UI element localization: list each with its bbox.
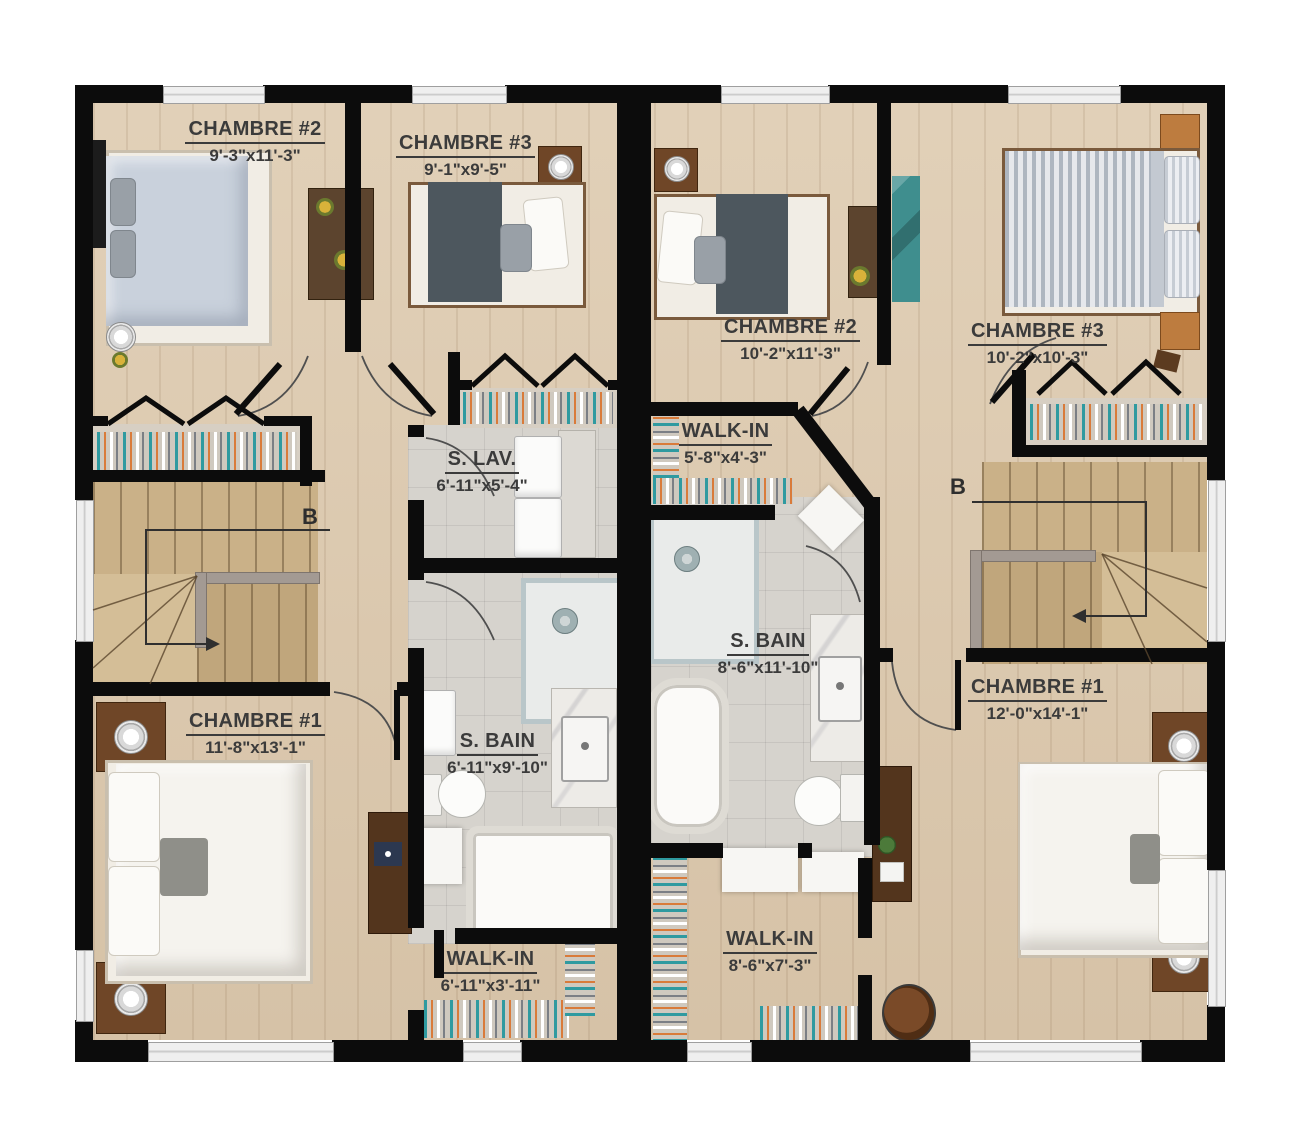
stair-flight <box>93 482 318 574</box>
window <box>163 86 265 104</box>
wall <box>1207 85 1225 480</box>
window <box>687 1042 752 1062</box>
wall <box>448 380 472 390</box>
bench <box>892 176 920 302</box>
wall <box>828 85 1008 103</box>
desk <box>368 812 412 934</box>
shower-head <box>552 608 578 634</box>
room-name: S. BAIN <box>457 730 538 756</box>
stairs-right <box>982 462 1207 664</box>
wall <box>1207 1005 1225 1062</box>
nightstand <box>1160 114 1200 150</box>
room-label-sbain-right: S. BAIN 8'-6"x11'-10" <box>683 630 853 678</box>
clothes-rack <box>653 856 687 1042</box>
wall <box>966 648 1225 662</box>
wall <box>408 558 617 573</box>
wall <box>651 843 723 858</box>
room-name: CHAMBRE #3 <box>396 132 535 158</box>
room-dims: 6'-11"x5'-4" <box>436 474 527 496</box>
stair-flight <box>197 574 318 684</box>
wall <box>864 497 880 845</box>
pillow <box>1158 858 1210 944</box>
room-dims: 9'-1"x9'-5" <box>424 158 507 180</box>
stair-winder <box>93 574 197 684</box>
table-lamp <box>114 982 148 1016</box>
party-wall <box>617 85 651 1062</box>
wall <box>798 843 812 858</box>
stair-label-right: B <box>950 474 966 500</box>
room-dims: 5'-8"x4'-3" <box>684 446 767 468</box>
wall <box>1012 445 1207 457</box>
room-label-walkin-bottom-right: WALK-IN 8'-6"x7'-3" <box>690 928 850 976</box>
table-lamp <box>1168 730 1200 762</box>
room-name: CHAMBRE #1 <box>186 710 325 736</box>
window <box>148 1042 334 1062</box>
floor-plan: CHAMBRE #2 9'-3"x11'-3" CHAMBRE #3 9'-1"… <box>0 0 1300 1144</box>
wall <box>75 640 93 950</box>
bathtub <box>466 826 620 940</box>
table-lamp <box>664 156 690 182</box>
dryer <box>514 498 562 558</box>
room-label-slav-left: S. LAV. 6'-11"x5'-4" <box>402 448 562 496</box>
window <box>1208 870 1226 1007</box>
pillow <box>1158 770 1210 856</box>
pillow <box>110 230 136 278</box>
room-name: CHAMBRE #2 <box>721 316 860 342</box>
nightstand <box>1160 312 1200 350</box>
wall <box>651 402 798 416</box>
room-name: CHAMBRE #1 <box>968 676 1107 702</box>
room-dims: 8'-6"x11'-10" <box>718 656 819 678</box>
bed-throw <box>160 838 208 896</box>
room-name: WALK-IN <box>723 928 817 954</box>
stair-railing <box>970 550 1096 562</box>
wall <box>505 85 721 103</box>
toilet <box>794 776 844 826</box>
faucet <box>581 742 589 750</box>
bath-mat <box>802 852 864 892</box>
bed-blanket <box>428 182 502 302</box>
wall <box>75 85 93 500</box>
flowers <box>112 352 128 368</box>
wall <box>880 648 893 662</box>
bathtub <box>647 678 729 834</box>
pillow <box>500 224 532 272</box>
room-dims: 8'-6"x7'-3" <box>729 954 812 976</box>
bed-sheet <box>1151 151 1164 307</box>
room-name: S. LAV. <box>445 448 520 474</box>
stair-railing <box>970 550 982 659</box>
plant <box>878 836 896 854</box>
bed-blanket <box>716 194 788 314</box>
room-label-chambre2-left: CHAMBRE #2 9'-3"x11'-3" <box>150 118 360 166</box>
room-dims: 11'-8"x13'-1" <box>205 736 306 758</box>
wall <box>93 470 325 482</box>
room-label-chambre3-left: CHAMBRE #3 9'-1"x9'-5" <box>358 132 573 180</box>
pillow <box>1164 230 1200 298</box>
window <box>76 950 94 1022</box>
room-name: WALK-IN <box>679 420 773 446</box>
papers <box>880 862 904 882</box>
chair <box>882 984 936 1042</box>
room-label-walkin-top-right: WALK-IN 5'-8"x4'-3" <box>648 420 803 468</box>
wall <box>858 975 872 1050</box>
table-lamp <box>114 720 148 754</box>
clothes-rack <box>1030 404 1202 440</box>
pillow <box>694 236 726 284</box>
stair-label-left: B <box>302 504 318 530</box>
stair-railing <box>195 572 320 584</box>
room-dims: 9'-3"x11'-3" <box>209 144 300 166</box>
faucet <box>836 682 844 690</box>
shower-head <box>674 546 700 572</box>
window <box>721 86 830 104</box>
room-label-chambre3-right: CHAMBRE #3 10'-2"x10'-3" <box>930 320 1145 368</box>
wall <box>75 1020 93 1062</box>
wall <box>608 380 617 390</box>
clothes-rack <box>97 432 297 472</box>
wall <box>332 1040 463 1062</box>
laundry-counter <box>558 430 596 558</box>
window <box>76 500 94 642</box>
pillow <box>110 178 136 226</box>
room-label-chambre1-left: CHAMBRE #1 11'-8"x13'-1" <box>148 710 363 758</box>
flowers <box>316 198 334 216</box>
clothes-rack <box>653 478 793 504</box>
wall <box>408 425 424 437</box>
room-dims: 6'-11"x3'-11" <box>441 974 541 996</box>
room-dims: 12'-0"x14'-1" <box>987 702 1089 724</box>
room-dims: 10'-2"x10'-3" <box>987 346 1089 368</box>
room-dims: 6'-11"x9'-10" <box>447 756 548 778</box>
pillow <box>108 772 160 862</box>
wall <box>397 682 408 696</box>
wall <box>93 682 330 696</box>
room-label-chambre1-right: CHAMBRE #1 12'-0"x14'-1" <box>930 676 1145 724</box>
room-label-chambre2-right: CHAMBRE #2 10'-2"x11'-3" <box>683 316 898 364</box>
pillow <box>1164 156 1200 224</box>
clothes-rack <box>463 392 613 424</box>
wall <box>651 505 775 520</box>
window <box>1208 480 1226 642</box>
wall <box>263 85 412 103</box>
bed-duvet <box>1005 151 1151 307</box>
bed-headboard <box>93 140 106 248</box>
bath-mat <box>722 848 798 892</box>
clothes-rack <box>424 1000 569 1038</box>
clothes-rack <box>760 1006 862 1044</box>
toilet <box>840 774 866 822</box>
wall <box>1012 370 1026 457</box>
window <box>412 86 507 104</box>
wall <box>858 858 872 938</box>
room-name: CHAMBRE #2 <box>185 118 324 144</box>
wall <box>455 928 617 944</box>
wall <box>408 1010 424 1040</box>
bath-mat <box>420 828 462 884</box>
stair-railing <box>195 572 207 648</box>
window <box>1008 86 1121 104</box>
room-label-sbain-left: S. BAIN 6'-11"x9'-10" <box>415 730 580 778</box>
wall <box>1207 640 1225 870</box>
room-label-walkin-left: WALK-IN 6'-11"x3'-11" <box>408 948 573 996</box>
stair-flight <box>982 462 1207 552</box>
window <box>463 1042 522 1062</box>
wall <box>408 648 424 928</box>
room-name: WALK-IN <box>444 948 538 974</box>
laptop <box>374 842 402 866</box>
window <box>970 1042 1142 1062</box>
wall <box>520 1040 687 1062</box>
pillow <box>108 866 160 956</box>
room-name: S. BAIN <box>727 630 808 656</box>
wall <box>93 416 108 426</box>
room-dims: 10'-2"x11'-3" <box>740 342 841 364</box>
room-name: CHAMBRE #3 <box>968 320 1107 346</box>
table-lamp <box>106 322 136 352</box>
bed-throw <box>1130 834 1160 884</box>
flowers <box>850 266 870 286</box>
